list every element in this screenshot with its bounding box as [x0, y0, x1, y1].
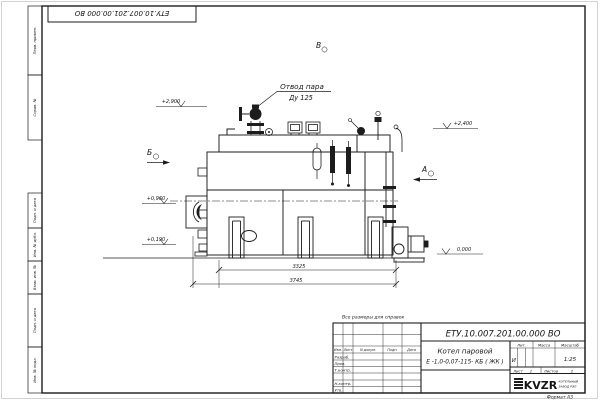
sheet-value: 1 [530, 368, 532, 373]
callout-line2: Ду 125 [288, 94, 313, 102]
dimension-3325: 3325 [293, 264, 306, 270]
margin-label-inv-dubl: Инв. № дубл. [33, 232, 37, 257]
row-utv: Утв. [335, 388, 343, 393]
elevation-2400: +2,400 [454, 121, 473, 127]
header-data: Дата [406, 348, 416, 352]
boiler-drawing-svg: Перв. примен. Справ. № Подп. и дата Инв.… [0, 0, 600, 400]
scale-value: 1:25 [564, 357, 577, 363]
format-label: Формат А3 [547, 394, 573, 400]
reference-note: Все размеры для справок [342, 315, 405, 321]
drawing-sheet: Перв. примен. Справ. № Подп. и дата Инв.… [0, 0, 600, 400]
row-nkontr: Н.контр. [335, 381, 352, 386]
elevation-0960: +0,960 [147, 196, 166, 202]
title-doc-number: ЕТУ.10.007.201.00.000 ВО [446, 330, 561, 340]
header-podp: Подп. [387, 348, 397, 352]
logo-sub2: ЗАВОД РЭП [559, 385, 578, 389]
row-tkontr: Т.контр. [335, 368, 351, 373]
margin-label-perv-primen: Перв. примен. [33, 27, 37, 55]
elevation-2900: +2,900 [162, 99, 181, 105]
margin-label-sprav-no: Справ. № [33, 98, 37, 116]
corner-stamp-doc-number: ЕТУ.10.007.201.00.000 ВО [74, 9, 169, 17]
view-marker-right: А [421, 165, 427, 174]
elevation-0190: +0,190 [147, 237, 166, 243]
elevation-0000: 0,000 [457, 247, 471, 253]
logo-text: KVZR [524, 379, 558, 392]
callout-line1: Отвод пара [280, 82, 324, 91]
sheets-label: Листов [543, 368, 559, 373]
view-marker-left: Б [147, 148, 152, 157]
dimension-3745: 3745 [290, 278, 303, 284]
sheet-label: Лист [512, 368, 523, 373]
logo-sub1: КОТЕЛЬНЫЙ [559, 379, 579, 384]
margin-label-inv-podl: Инв. № подл. [33, 357, 37, 382]
lit-value: И [512, 358, 516, 364]
product-name-line1: Котел паровой [438, 348, 493, 356]
view-marker-top: В [316, 41, 321, 50]
margin-label-podp-data-1: Подп. и дата [33, 197, 37, 223]
lit-header: Лит. [516, 342, 526, 347]
header-ndoc: N докум. [360, 348, 376, 352]
masshtab-header: Масштаб [561, 342, 580, 347]
massa-header: Масса [538, 342, 551, 347]
margin-label-podp-data-2: Подп. и дата [33, 307, 37, 333]
row-prov: Пров. [335, 361, 346, 366]
header-izm: Изм. [334, 348, 342, 352]
product-name-line2: Е -1,0-0,07-115- КБ ( ЖК ) [426, 360, 503, 366]
row-razrab: Разраб. [335, 355, 350, 360]
header-list: Лист [343, 348, 354, 352]
margin-label-vzam-inv: Взам. инв. № [33, 265, 37, 290]
